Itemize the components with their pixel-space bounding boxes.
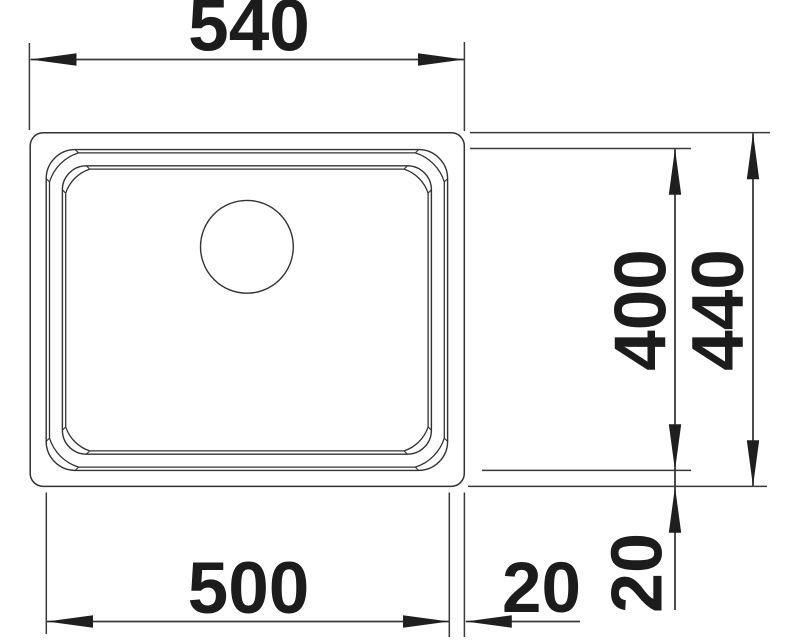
svg-text:400: 400 [601, 249, 682, 371]
svg-text:20: 20 [598, 533, 678, 613]
svg-text:440: 440 [678, 249, 759, 371]
svg-text:540: 540 [188, 0, 310, 66]
svg-text:500: 500 [188, 548, 310, 629]
svg-text:20: 20 [502, 549, 581, 628]
